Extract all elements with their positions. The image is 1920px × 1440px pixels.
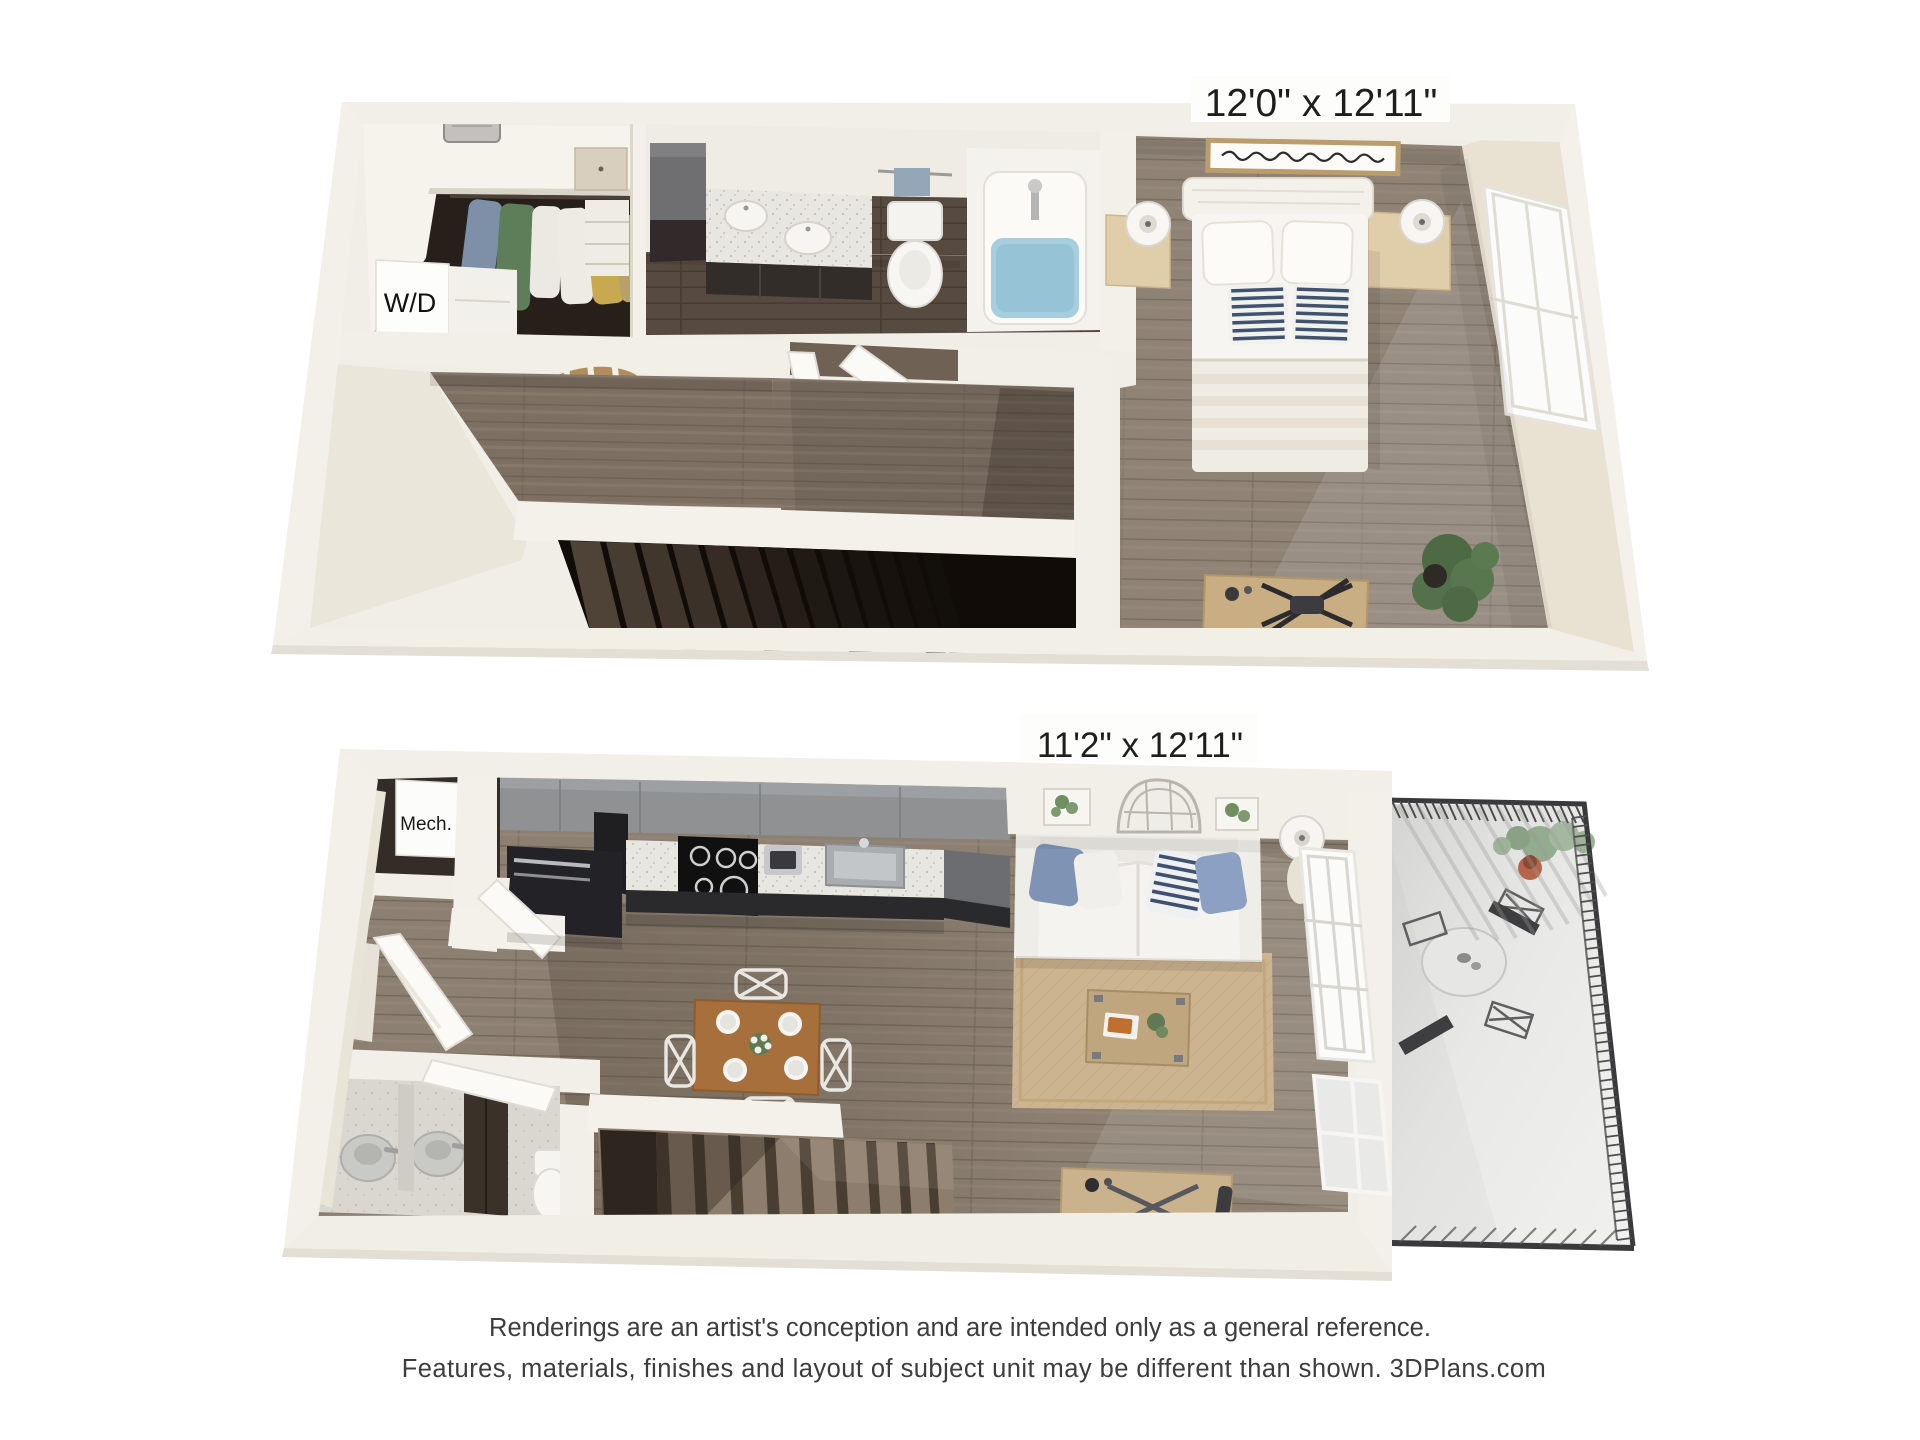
- svg-text:W/D: W/D: [384, 288, 436, 318]
- svg-text:11'2" x 12'11": 11'2" x 12'11": [1037, 726, 1243, 765]
- svg-text:Renderings are an artist's con: Renderings are an artist's conception an…: [489, 1314, 1431, 1342]
- svg-text:Features, materials, finishes: Features, materials, finishes and layout…: [402, 1355, 1547, 1383]
- svg-text:Mech.: Mech.: [400, 814, 452, 835]
- svg-text:12'0" x 12'11": 12'0" x 12'11": [1205, 82, 1438, 125]
